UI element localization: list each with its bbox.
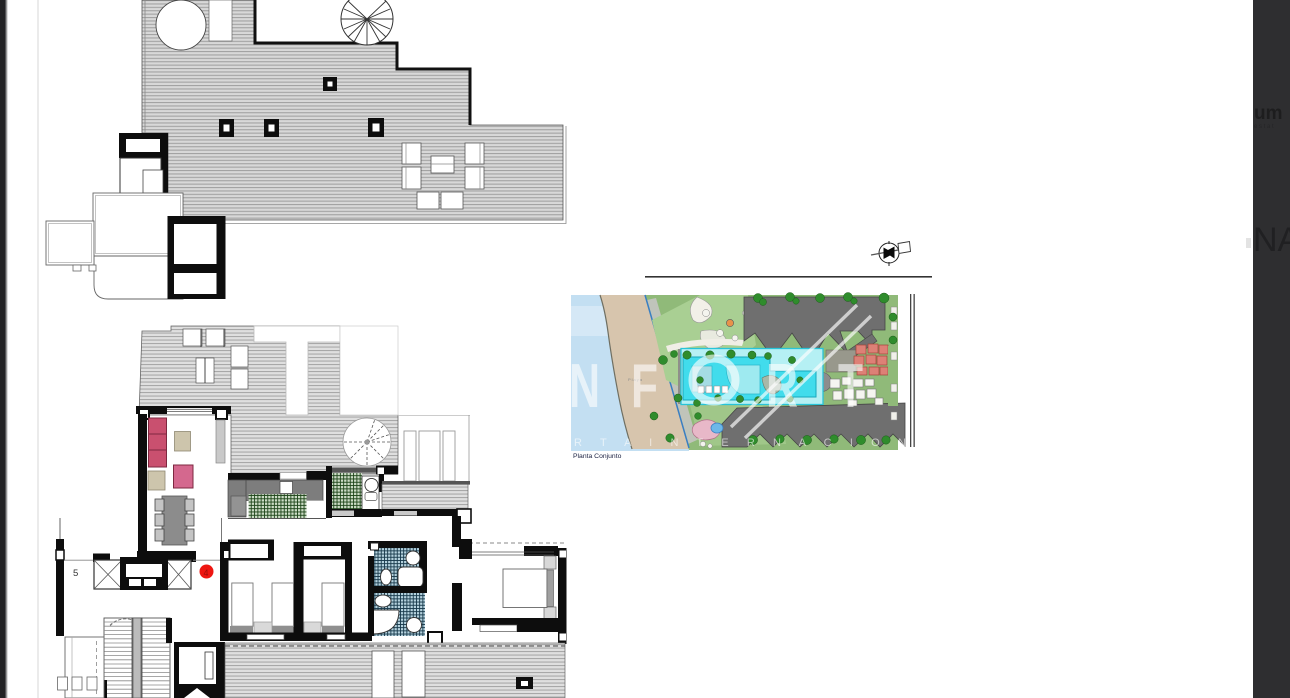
svg-text:R T A I N T E R N A C I O N A: R T A I N T E R N A C I O N A L [574, 437, 962, 449]
svg-text:4: 4 [204, 568, 209, 578]
svg-text:N: N [569, 352, 600, 421]
svg-text:5: 5 [73, 568, 78, 579]
svg-text:T: T [838, 352, 863, 421]
svg-text:Planta Conjunto: Planta Conjunto [573, 453, 622, 460]
svg-text:F: F [631, 352, 658, 421]
